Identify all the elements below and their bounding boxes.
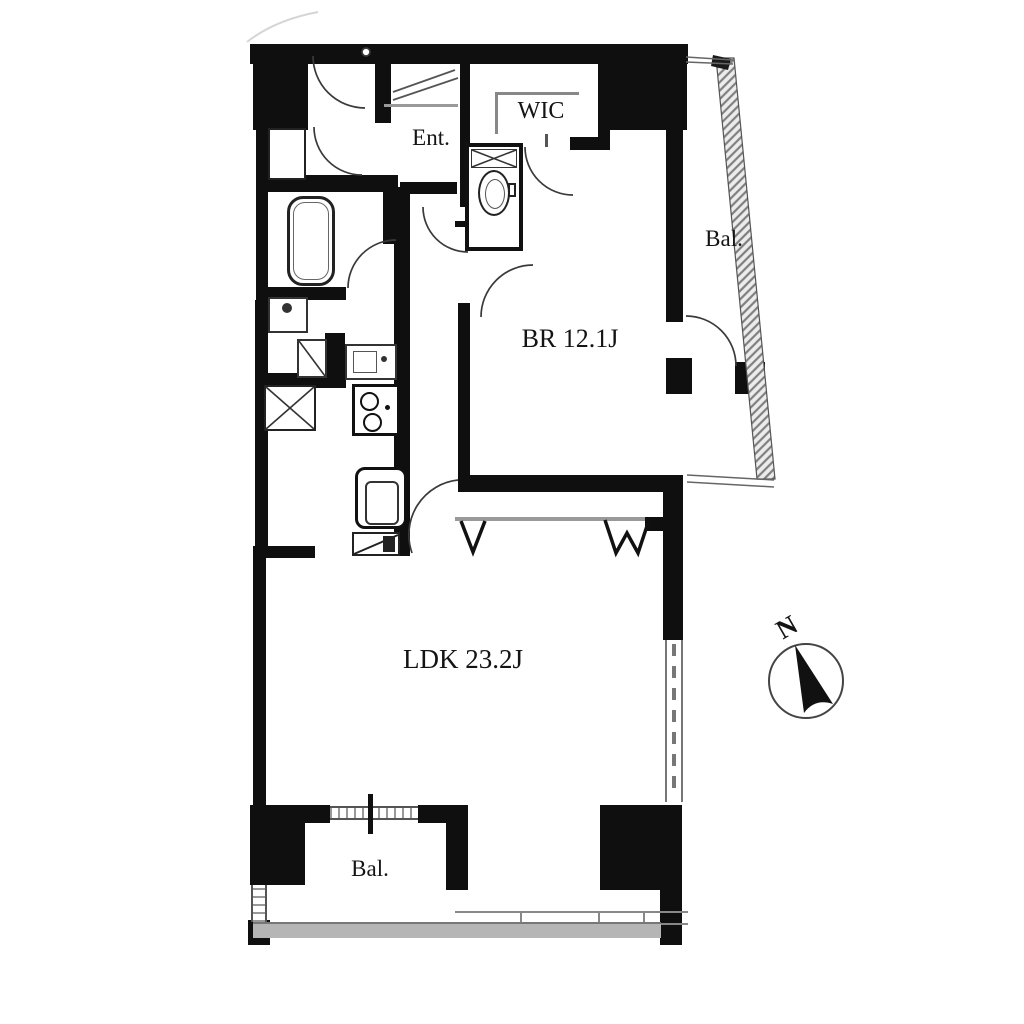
window-south-balcony	[330, 806, 418, 820]
railing-bottom-line	[687, 482, 774, 487]
wall-segment	[458, 475, 683, 492]
balcony-railing-east	[716, 58, 775, 479]
closet-hanger-marks-icon	[461, 520, 649, 553]
room-label-entrance: Ent.	[402, 125, 460, 151]
wall-segment	[256, 192, 268, 302]
meter-box	[268, 128, 306, 180]
storage-x-box-icon	[264, 385, 316, 431]
door-arc-hall	[314, 127, 362, 175]
compass-circle	[769, 644, 843, 718]
toilet-bowl-inner	[485, 179, 505, 209]
hanger-w-mark	[605, 520, 649, 553]
door-arc-bedroom	[481, 265, 533, 317]
wall-segment	[256, 128, 268, 180]
railing-joint	[711, 55, 731, 70]
wall-segment	[458, 303, 470, 477]
wall-pillar	[600, 805, 682, 890]
entrance-step-line	[384, 104, 458, 107]
wall-segment	[253, 556, 266, 806]
scan-artifact	[247, 12, 318, 42]
door-arc-ldk	[409, 480, 458, 553]
water-heater-inner	[365, 481, 399, 525]
bathtub-icon	[287, 196, 335, 286]
compass-north-label: N	[765, 606, 810, 650]
closet-shelf-line	[455, 517, 645, 521]
wic-pipe	[495, 92, 498, 134]
floorplan-canvas: Ent. WIC Bal. BR 12.1J LDK 23.2J Bal. N	[0, 0, 1024, 1024]
wall-segment	[570, 137, 610, 150]
wic-tick	[545, 134, 548, 147]
refrigerator-marker-icon	[352, 532, 400, 556]
sink-bowl	[353, 351, 377, 373]
wall-segment	[663, 487, 683, 640]
door-arc-toilet	[423, 207, 468, 252]
sink-drain	[381, 356, 387, 362]
wall-pillar	[253, 44, 308, 130]
washing-machine-pan-icon	[297, 339, 327, 378]
wall-segment	[660, 888, 682, 945]
door-arc-balcony-east	[686, 316, 736, 366]
wall-segment	[446, 805, 468, 890]
room-label-balcony-east: Bal.	[696, 226, 752, 252]
faucet-dot	[282, 303, 292, 313]
railing-top-line	[686, 57, 733, 60]
wall-segment	[666, 130, 683, 322]
wall-segment	[598, 63, 610, 143]
burner	[360, 392, 379, 411]
hanger-v-mark	[461, 521, 485, 552]
room-label-balcony-south: Bal.	[342, 856, 398, 882]
window-east-sliding	[665, 640, 683, 802]
compass-icon	[769, 644, 843, 718]
wall-segment	[375, 50, 391, 123]
water-heater-icon	[355, 467, 407, 529]
compass-needle	[795, 645, 833, 713]
room-label-wic: WIC	[510, 98, 572, 125]
kitchen-sink-icon	[345, 344, 397, 380]
stove-icon	[352, 384, 400, 436]
toilet-icon	[478, 170, 510, 216]
window-west	[251, 885, 267, 922]
shoe-closet-line	[393, 70, 455, 92]
shoe-closet-line	[393, 78, 458, 100]
room-label-bedroom: BR 12.1J	[510, 324, 630, 354]
burner	[363, 413, 382, 432]
wall-pillar	[607, 44, 687, 130]
window-rail	[672, 644, 676, 798]
balcony-floor-edge	[253, 922, 661, 938]
railing-bottom-line	[687, 475, 774, 480]
wall-segment	[400, 182, 457, 194]
room-label-ldk: LDK 23.2J	[398, 644, 528, 675]
railing-line	[455, 911, 688, 913]
stove-knob	[385, 405, 390, 410]
railing-post	[735, 362, 765, 394]
door-arc-wic	[525, 147, 573, 195]
wall-pillar	[250, 805, 305, 885]
window-center-tick	[368, 794, 373, 834]
door-arc-bathroom	[348, 240, 396, 288]
bathtub-inner	[293, 202, 329, 280]
toilet-tank	[471, 149, 517, 168]
wic-pipe	[495, 92, 579, 95]
washbasin-icon	[268, 297, 308, 333]
wall-segment	[666, 358, 692, 394]
toilet-flush-box	[508, 183, 516, 197]
railing-top-line	[686, 62, 733, 64]
refrigerator-block	[383, 536, 395, 552]
